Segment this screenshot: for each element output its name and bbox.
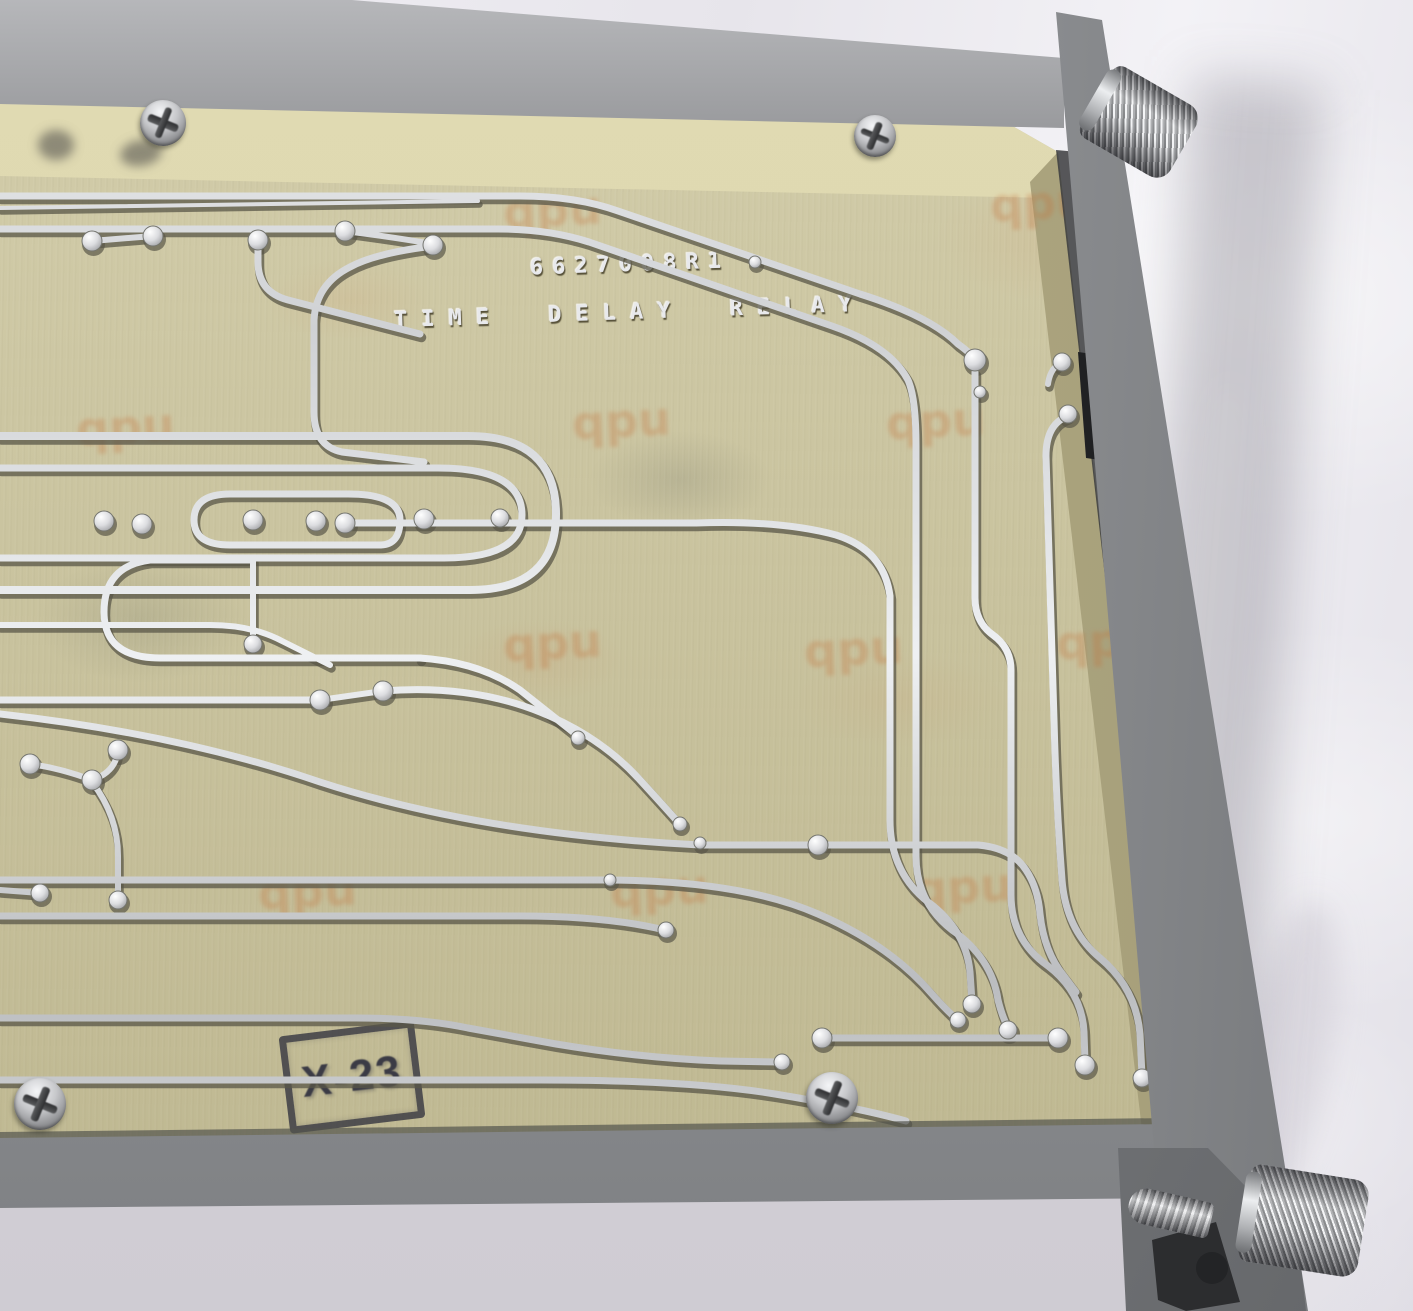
bracket-hole — [1196, 1252, 1228, 1284]
trace-shadow — [2, 200, 1155, 1125]
photo-canvas: qpuqpuqpuqpuqpuqpuqpuqpuqpuqpuqpu 662700… — [0, 0, 1413, 1311]
thumbscrew-bottom — [1237, 1163, 1371, 1279]
